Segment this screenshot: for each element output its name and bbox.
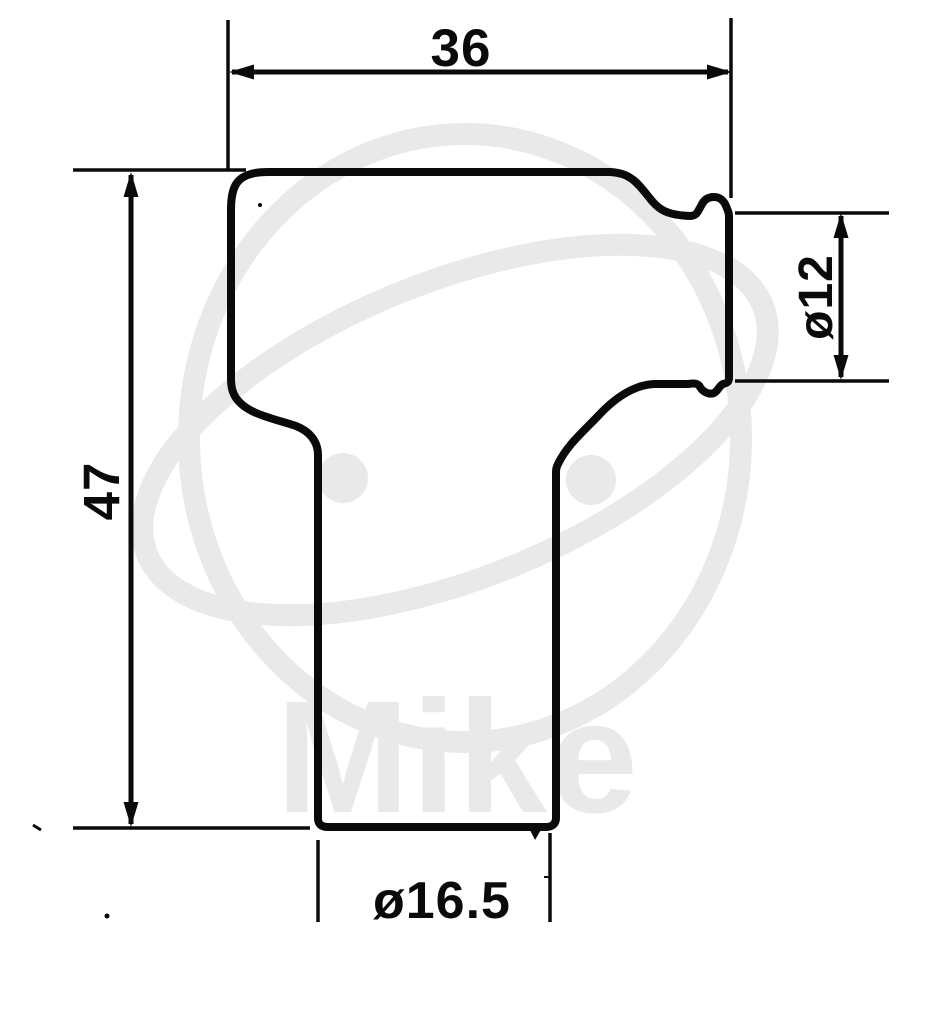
watermark-logo: Mike bbox=[92, 134, 819, 846]
arrow-down-terminal-icon bbox=[834, 355, 849, 380]
scan-artifact-dot-2 bbox=[258, 203, 262, 207]
spark-plug-cap-drawing: Mike bbox=[0, 0, 942, 1024]
scan-artifact-dot bbox=[105, 914, 110, 919]
dimension-label-side-height: 47 bbox=[73, 462, 130, 521]
watermark-left-eye bbox=[318, 453, 368, 503]
scan-artifact-dash bbox=[33, 825, 41, 830]
watermark-face-ring bbox=[189, 134, 741, 742]
dimension-label-top-width: 36 bbox=[431, 19, 492, 78]
dimension-label-terminal-diameter: ø12 bbox=[790, 254, 843, 340]
arrow-right-icon bbox=[707, 65, 732, 80]
arrow-up-icon bbox=[124, 172, 139, 197]
arrow-up-terminal-icon bbox=[834, 213, 849, 238]
arrow-down-icon bbox=[124, 802, 139, 827]
arrow-left-icon bbox=[229, 65, 254, 80]
watermark-orbit-ring bbox=[92, 168, 819, 691]
dimension-label-base-diameter: ø16.5 bbox=[373, 872, 511, 930]
technical-drawing-page: Mike bbox=[0, 0, 942, 1024]
watermark-right-eye bbox=[566, 455, 616, 505]
watermark-text: Mike bbox=[276, 667, 640, 846]
